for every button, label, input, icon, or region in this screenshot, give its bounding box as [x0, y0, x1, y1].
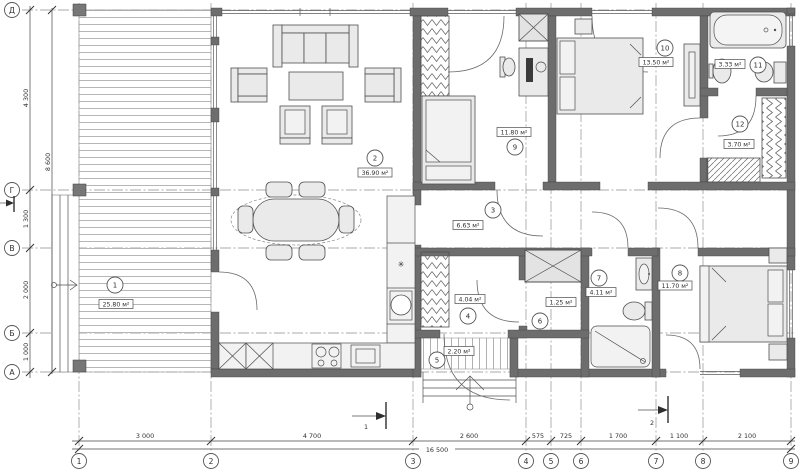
- svg-text:2: 2: [650, 419, 654, 427]
- svg-text:2: 2: [373, 155, 377, 163]
- svg-text:36.90 м²: 36.90 м²: [362, 170, 389, 177]
- svg-text:4 300: 4 300: [22, 89, 30, 107]
- sofa: [273, 25, 358, 67]
- svg-text:6.63 м²: 6.63 м²: [457, 223, 480, 230]
- svg-text:4: 4: [466, 313, 471, 321]
- axis-bubbles-left: Д Г В Б А: [5, 3, 20, 380]
- room-label-12-closet: 12 3.70 м²: [724, 116, 754, 149]
- svg-text:1: 1: [364, 423, 368, 431]
- svg-text:9: 9: [513, 144, 517, 152]
- nightstand: [769, 248, 787, 263]
- window-room10-top: [592, 11, 652, 14]
- stove: [312, 344, 341, 368]
- dining-chair: [238, 206, 253, 233]
- door-room7: [592, 212, 628, 248]
- room10-furniture: [557, 19, 700, 114]
- dining-chair: [266, 245, 292, 260]
- svg-text:11.70 м²: 11.70 м²: [662, 283, 689, 290]
- desk-and-chair: [500, 48, 548, 96]
- door-terrace-living: [219, 272, 257, 310]
- room4-wardrobe: [421, 252, 449, 327]
- entry-direction-arrow-icon: [456, 376, 484, 410]
- window-room9-top: [448, 11, 516, 14]
- dimension-chain-left: 4 300 1 300 2 000 1 000 8 600: [22, 6, 56, 378]
- dining-chair: [339, 206, 354, 233]
- living-room-sofa-set: [231, 25, 401, 144]
- single-bed: [422, 96, 475, 184]
- svg-text:4 700: 4 700: [303, 432, 321, 440]
- terrace-deck: [52, 4, 212, 372]
- svg-text:8: 8: [678, 270, 682, 278]
- wardrobe-hangers: [421, 16, 449, 96]
- svg-text:8: 8: [701, 457, 706, 466]
- svg-text:2.20 м²: 2.20 м²: [448, 349, 471, 356]
- dining-chair: [299, 182, 325, 197]
- room-label-3-hall: 3 6.63 м²: [453, 202, 501, 230]
- floor-plan-drawing: ✳: [0, 0, 800, 470]
- section-mark-2: 2: [638, 396, 668, 427]
- svg-text:Г: Г: [10, 186, 15, 195]
- dining-chair: [266, 182, 292, 197]
- coffee-table: [289, 72, 343, 100]
- star-symbol: ✳: [398, 260, 405, 269]
- armchair-right: [365, 68, 401, 102]
- kitchen-sink: [390, 291, 412, 320]
- door-room10-closet: [660, 118, 700, 158]
- svg-text:3: 3: [411, 457, 416, 466]
- svg-text:725: 725: [560, 432, 572, 440]
- door-room8-hall: [658, 208, 698, 248]
- svg-text:4.11 м²: 4.11 м²: [590, 290, 613, 297]
- windows-left-wall: [214, 16, 217, 250]
- svg-text:3.70 м²: 3.70 м²: [728, 142, 751, 149]
- terrace-ramp: [52, 195, 80, 372]
- room8-furniture: [700, 248, 787, 360]
- svg-text:4: 4: [524, 457, 529, 466]
- pouf-left: [280, 106, 310, 144]
- toilet: [623, 302, 652, 320]
- svg-text:3: 3: [491, 207, 495, 215]
- svg-text:2 000: 2 000: [22, 281, 30, 299]
- svg-text:3 000: 3 000: [136, 432, 154, 440]
- nightstand: [769, 344, 787, 360]
- bathroom11-fixtures: [709, 12, 786, 83]
- svg-text:16 500: 16 500: [426, 446, 448, 454]
- svg-text:1 700: 1 700: [609, 432, 627, 440]
- svg-text:В: В: [9, 244, 14, 253]
- door-hall-room9: [497, 190, 543, 236]
- svg-text:1 000: 1 000: [22, 343, 30, 361]
- svg-text:575: 575: [532, 432, 544, 440]
- room-label-6-vestibule: 6 1.25 м²: [532, 298, 576, 330]
- double-bed: [700, 266, 787, 342]
- room-label-7-bathroom: 7 4.11 м²: [586, 270, 616, 297]
- svg-text:А: А: [9, 368, 15, 377]
- door-room8-garden: [666, 335, 700, 369]
- svg-text:11: 11: [754, 62, 763, 70]
- svg-text:1: 1: [77, 457, 82, 466]
- svg-text:25.80 м²: 25.80 м²: [103, 302, 130, 309]
- svg-text:11.80 м²: 11.80 м²: [501, 130, 528, 137]
- svg-text:2 100: 2 100: [738, 432, 756, 440]
- svg-text:12: 12: [736, 121, 745, 129]
- section-mark-left: [0, 196, 14, 212]
- floor-plan-page: ✳: [0, 0, 800, 470]
- svg-text:10: 10: [661, 45, 670, 53]
- svg-text:1.25 м²: 1.25 м²: [550, 300, 573, 307]
- room-label-4-wardrobe: 4 4.04 м²: [455, 295, 485, 325]
- svg-text:4.04 м²: 4.04 м²: [459, 297, 482, 304]
- room9-furniture: [421, 14, 548, 184]
- shaft6-x: [525, 250, 581, 282]
- svg-text:1 100: 1 100: [670, 432, 688, 440]
- kitchen-cabinet-x: [219, 343, 273, 369]
- dining-table: [253, 199, 339, 241]
- svg-text:1 300: 1 300: [22, 210, 30, 228]
- axis-bubbles-bottom: 1 2 3 4 5 6 7 8 9: [72, 454, 799, 469]
- hanger-rack-horizontal: [707, 158, 760, 182]
- dimension-chain-bottom: 3 000 4 700 2 600 575 725 1 700 1 100 2 …: [72, 432, 795, 454]
- svg-text:1: 1: [113, 282, 117, 290]
- svg-text:13.50 м²: 13.50 м²: [643, 60, 670, 67]
- armchair-left: [231, 68, 267, 102]
- svg-text:5: 5: [435, 357, 439, 365]
- dining-chair: [299, 245, 325, 260]
- bathtub: [710, 12, 786, 48]
- double-bed: [557, 38, 643, 114]
- hanger-rack-vertical: [762, 98, 786, 178]
- svg-text:Б: Б: [9, 329, 14, 338]
- svg-text:3.33 м²: 3.33 м²: [719, 62, 742, 69]
- svg-text:2: 2: [209, 457, 214, 466]
- sink: [636, 258, 652, 290]
- section-mark-1: 1: [352, 402, 386, 431]
- svg-text:2 600: 2 600: [460, 432, 478, 440]
- shower-tray: [591, 326, 650, 367]
- svg-text:7: 7: [654, 457, 659, 466]
- room-label-2-living: 2 36.90 м²: [358, 150, 392, 177]
- svg-text:9: 9: [789, 457, 794, 466]
- svg-text:Д: Д: [9, 6, 15, 15]
- door-room9-top: [448, 16, 504, 72]
- svg-text:7: 7: [597, 275, 601, 283]
- oven: [351, 345, 380, 367]
- svg-text:5: 5: [549, 457, 554, 466]
- svg-text:6: 6: [579, 457, 584, 466]
- nightstand: [575, 19, 592, 34]
- shaft-x: [519, 14, 548, 41]
- room-label-8-bedroom: 8 11.70 м²: [658, 265, 692, 290]
- pouf-right: [322, 106, 352, 144]
- tall-cabinet: [684, 44, 700, 106]
- window-living-top: [222, 8, 410, 16]
- svg-text:8 600: 8 600: [44, 153, 52, 171]
- svg-text:6: 6: [538, 318, 543, 326]
